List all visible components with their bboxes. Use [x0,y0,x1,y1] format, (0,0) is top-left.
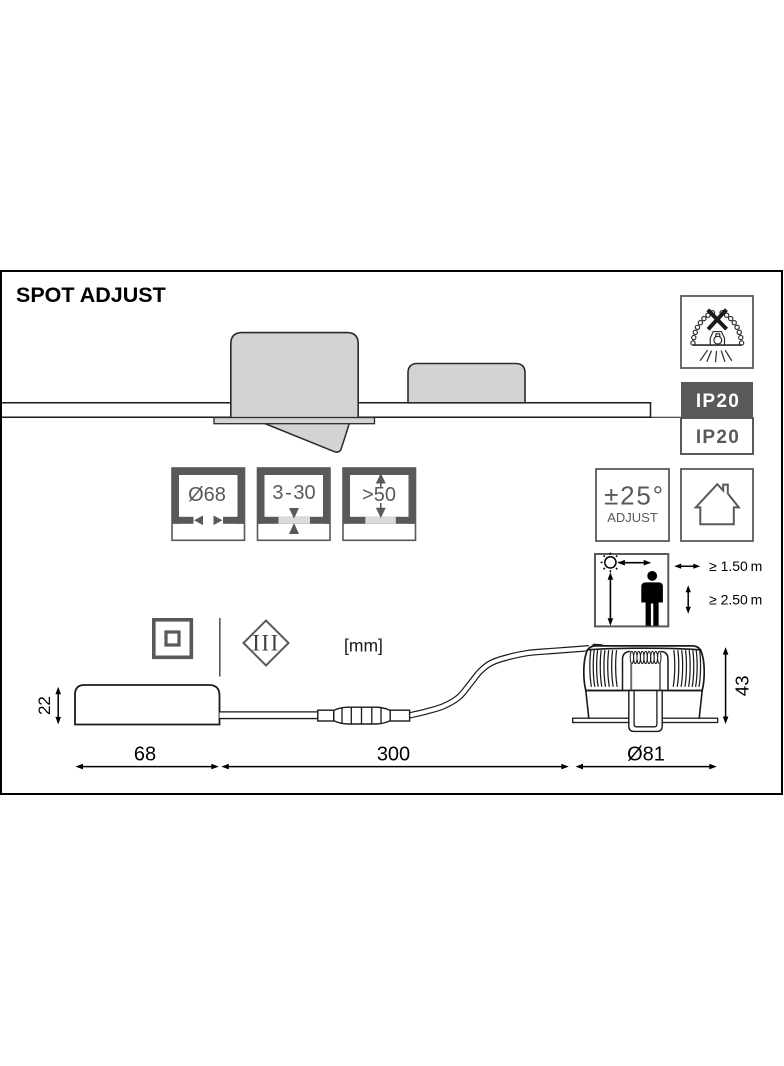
svg-text:≥ 2.50 m: ≥ 2.50 m [709,592,762,608]
svg-text:Ø81: Ø81 [627,744,665,766]
svg-text:3 - 30: 3 - 30 [272,482,315,504]
svg-text:IP20: IP20 [696,427,740,448]
svg-text:SPOT ADJUST: SPOT ADJUST [16,283,166,307]
svg-text:IP20: IP20 [696,391,740,412]
svg-text:Ø68: Ø68 [188,484,226,506]
svg-text:ADJUST: ADJUST [607,510,658,525]
svg-text:III: III [252,631,279,656]
svg-text:68: 68 [134,744,156,766]
svg-text:43: 43 [732,676,753,697]
svg-text:±25°: ±25° [604,481,665,511]
svg-text:>50: >50 [362,484,396,506]
svg-text:≥ 1.50 m: ≥ 1.50 m [709,558,762,574]
svg-text:22: 22 [35,696,54,715]
svg-text:300: 300 [377,744,410,766]
svg-text:[mm]: [mm] [344,636,383,656]
